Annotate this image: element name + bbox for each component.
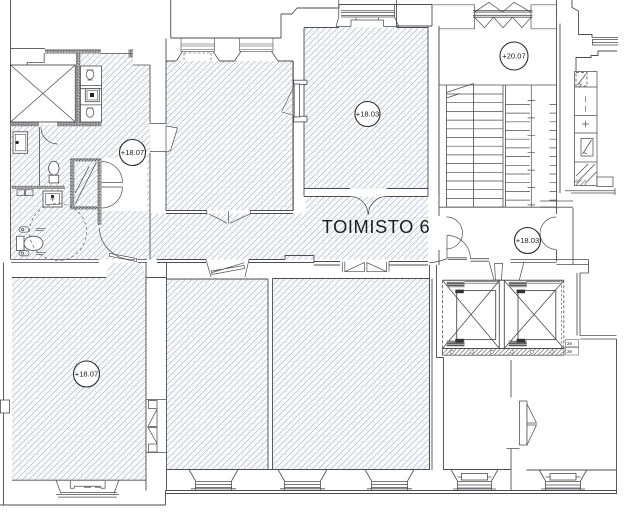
svg-text:2e: 2e: [567, 349, 573, 354]
svg-text:+18.03: +18.03: [516, 236, 539, 245]
svg-text:+18.07: +18.07: [75, 370, 98, 379]
svg-text:+18.07: +18.07: [121, 148, 144, 157]
svg-text:2e: 2e: [567, 341, 573, 346]
svg-text:TOIMISTO 6: TOIMISTO 6: [322, 216, 430, 237]
svg-text:+20.07: +20.07: [502, 52, 525, 61]
svg-text:+18.03: +18.03: [356, 110, 379, 119]
